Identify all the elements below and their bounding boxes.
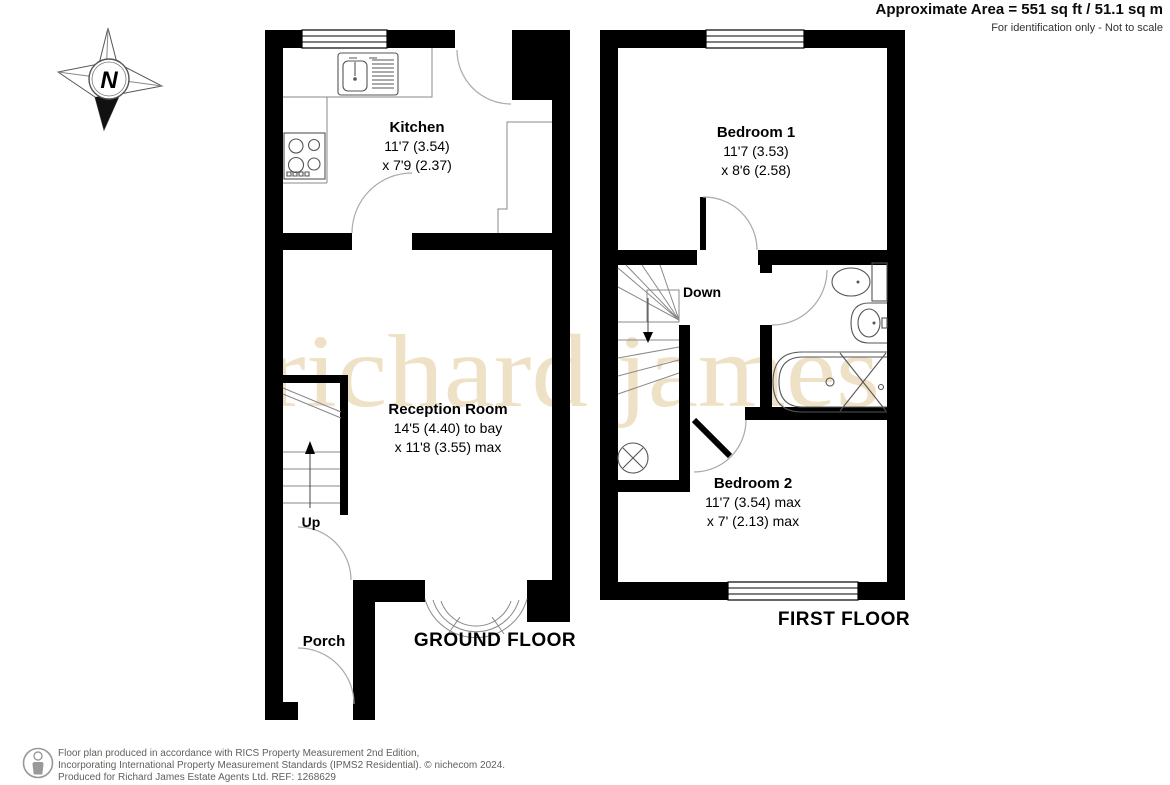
bedroom1-label: Bedroom 1 — [717, 124, 795, 141]
kitchen-dim-2: x 7'9 (2.37) — [382, 157, 452, 173]
circle-cross-symbol — [618, 443, 648, 473]
kitchen-dim-1: 11'7 (3.54) — [384, 138, 449, 154]
first-floor-label: FIRST FLOOR — [778, 609, 910, 630]
kitchen-window-icon — [302, 30, 387, 48]
bedroom2-dim-2: x 7' (2.13) max — [707, 513, 799, 529]
floorplan-page: richard james — [0, 0, 1170, 785]
down-label: Down — [683, 284, 721, 300]
bedroom1-dim-2: x 8'6 (2.58) — [721, 162, 791, 178]
porch-label: Porch — [303, 633, 346, 650]
front-door-arc — [298, 648, 354, 704]
floorplan-svg: richard james — [0, 0, 1170, 785]
bedroom2-window-icon — [728, 582, 858, 600]
header: Approximate Area = 551 sq ft / 51.1 sq m… — [876, 1, 1163, 34]
kitchen-label: Kitchen — [389, 119, 444, 136]
up-arrow-icon — [305, 441, 315, 454]
disclaimer-text: For identification only - Not to scale — [991, 22, 1163, 34]
ground-floor-label: GROUND FLOOR — [414, 630, 576, 651]
compass-icon: N — [58, 28, 162, 130]
reception-dim-2: x 11'8 (3.55) max — [395, 439, 502, 455]
nichecom-logo-icon — [24, 749, 53, 778]
reception-dim-1: 14'5 (4.40) to bay — [394, 420, 503, 436]
kitchen-tall-unit — [498, 122, 552, 233]
north-label: N — [100, 67, 118, 94]
bedroom1-door — [700, 197, 757, 250]
back-door-arc — [457, 50, 511, 104]
footer: Floor plan produced in accordance with R… — [24, 748, 506, 783]
toilet-icon — [832, 263, 887, 301]
hob-icon — [284, 133, 325, 179]
approximate-area-text: Approximate Area = 551 sq ft / 51.1 sq m — [876, 1, 1163, 18]
kitchen-door-arc — [352, 173, 412, 233]
bedroom2-dim-1: 11'7 (3.54) max — [705, 494, 801, 510]
porch-reception-door-arc — [298, 527, 351, 580]
bedroom1-dim-1: 11'7 (3.53) — [723, 143, 788, 159]
up-label: Up — [302, 514, 321, 530]
sink-icon — [338, 53, 398, 95]
bedroom1-window-icon — [706, 30, 804, 48]
reception-label: Reception Room — [388, 401, 507, 418]
footer-line-3: Produced for Richard James Estate Agents… — [58, 772, 336, 783]
bedroom2-label: Bedroom 2 — [714, 475, 792, 492]
footer-line-1: Floor plan produced in accordance with R… — [58, 748, 419, 759]
footer-line-2: Incorporating International Property Mea… — [58, 760, 505, 771]
